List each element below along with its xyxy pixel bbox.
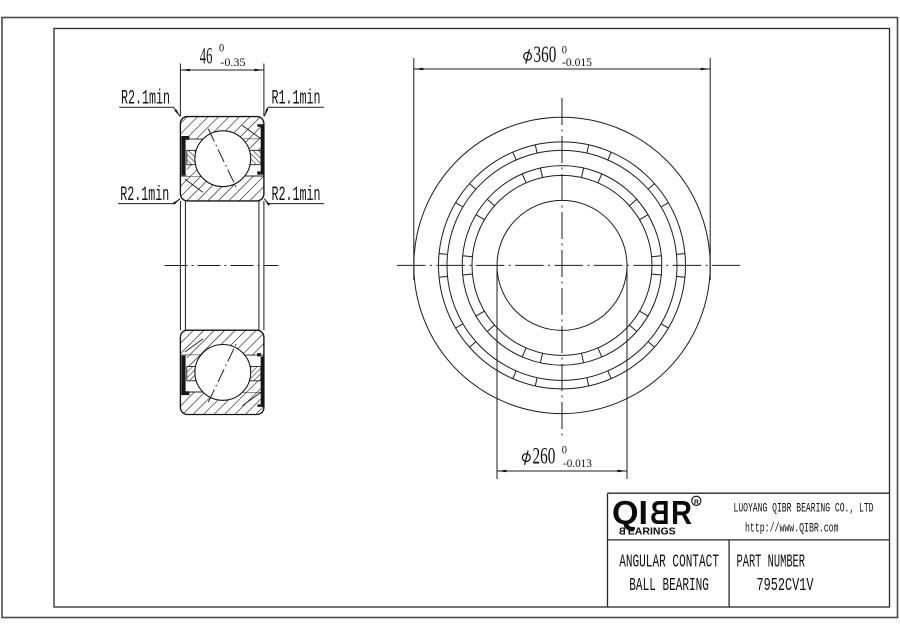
svg-text:0: 0 [562, 44, 568, 56]
svg-text:360: 360 [534, 42, 557, 67]
svg-text:ANGULAR CONTACT: ANGULAR CONTACT [619, 552, 719, 572]
svg-text:B: B [650, 494, 670, 531]
svg-text:0: 0 [562, 445, 568, 457]
svg-text:-0.35: -0.35 [220, 57, 246, 69]
svg-text:0: 0 [219, 42, 225, 54]
svg-text:http://www.QIBR.com: http://www.QIBR.com [745, 522, 839, 536]
svg-text:260: 260 [533, 443, 556, 468]
svg-text:BALL BEARING: BALL BEARING [629, 576, 709, 596]
svg-text:R: R [671, 494, 692, 531]
svg-text:-0.015: -0.015 [562, 57, 592, 69]
svg-text:46: 46 [200, 43, 213, 68]
svg-text:R: R [694, 499, 699, 506]
svg-text:EARINGS: EARINGS [628, 527, 676, 538]
svg-text:LUOYANG QIBR BEARING CO., LTD: LUOYANG QIBR BEARING CO., LTD [734, 502, 874, 516]
svg-text:PART NUMBER: PART NUMBER [737, 552, 806, 572]
svg-text:-0.013: -0.013 [563, 458, 592, 470]
svg-text:7952CV1V: 7952CV1V [757, 576, 814, 596]
svg-text:B: B [619, 527, 626, 538]
svg-text:QI: QI [612, 494, 648, 531]
